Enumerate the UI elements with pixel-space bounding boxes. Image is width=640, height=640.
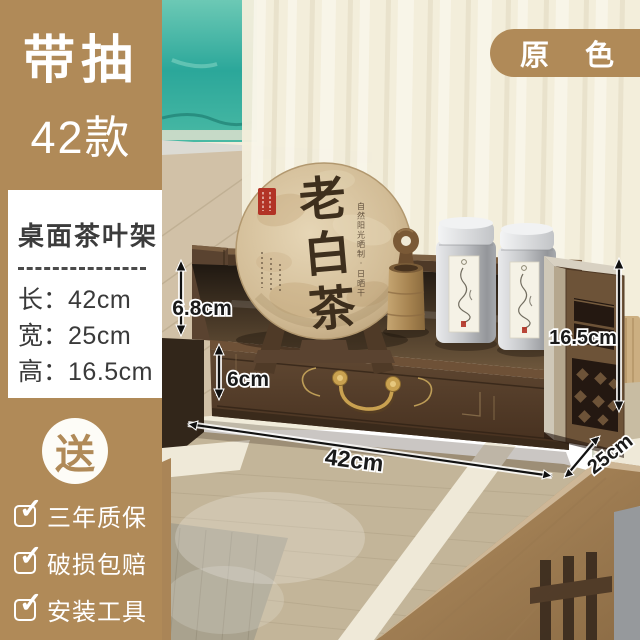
- dim-value: 16.5cm: [68, 358, 153, 386]
- feature-label: 安装工具: [47, 592, 147, 627]
- dimension-width: 宽：25cm: [18, 318, 162, 354]
- gift-panel: 送 ✓ 三年质保 ✓ 破损包赔 ✓ 安装工具: [0, 398, 162, 640]
- dimension-height: 高：16.5cm: [18, 354, 162, 390]
- gift-badge-text: 送: [55, 422, 95, 480]
- drawer-style-badge: 带抽 42款: [0, 0, 162, 190]
- annotation-total-height: 16.5cm: [549, 327, 617, 349]
- feature-warranty: ✓ 三年质保: [14, 498, 162, 533]
- product-title: 桌面茶叶架: [18, 216, 162, 253]
- seal-stamp-icon: [258, 188, 276, 215]
- dim-label: 长：: [18, 286, 68, 314]
- dim-value: 25cm: [68, 322, 131, 350]
- tea-cake-side-note: 自然阳光晒制·日晒干: [357, 201, 366, 298]
- dim-label: 高：: [18, 358, 68, 386]
- product-info: 桌面茶叶架 长：42cm 宽：25cm 高：16.5cm: [0, 190, 162, 390]
- tea-canister-left: [435, 217, 497, 351]
- product-photo: 老白茶 自然阳光晒制·日晒干: [162, 0, 640, 640]
- sidebar: 带抽 42款 桌面茶叶架 长：42cm 宽：25cm 高：16.5cm 送 ✓ …: [0, 0, 162, 640]
- feature-damage: ✓ 破损包赔: [14, 545, 162, 580]
- annotation-drawer-height: 6cm: [227, 368, 269, 391]
- canister-label: [510, 262, 539, 338]
- rack-side-panel: [544, 256, 624, 458]
- dim-value: 42cm: [68, 286, 131, 314]
- annotation-rail-height: 6.8cm: [172, 297, 232, 320]
- dim-label: 宽：: [18, 322, 68, 350]
- table-left-edge: [162, 458, 171, 640]
- product-card: 带抽 42款 桌面茶叶架 长：42cm 宽：25cm 高：16.5cm 送 ✓ …: [0, 0, 640, 640]
- dashed-divider: [18, 267, 146, 270]
- gift-badge: 送: [42, 418, 108, 484]
- canister-label: [449, 256, 479, 332]
- bamboo-tube: [387, 268, 425, 330]
- feature-label: 三年质保: [47, 498, 147, 533]
- gray-floor-corner: [614, 506, 640, 640]
- badge-line2: 42款: [0, 101, 162, 166]
- feature-label: 破损包赔: [47, 545, 147, 580]
- scene-illustration: 老白茶 自然阳光晒制·日晒干: [162, 0, 640, 640]
- tea-cake-group: 老白茶 自然阳光晒制·日晒干: [236, 163, 412, 374]
- checkbox-icon: ✓: [14, 552, 36, 574]
- checkbox-icon: ✓: [14, 599, 36, 621]
- badge-line1: 带抽: [0, 0, 162, 93]
- feature-tools: ✓ 安装工具: [14, 592, 162, 627]
- dimension-length: 长：42cm: [18, 282, 162, 318]
- checkmark-icon: ✓: [19, 539, 42, 572]
- checkmark-icon: ✓: [19, 586, 42, 619]
- checkbox-icon: ✓: [14, 505, 36, 527]
- variant-badge: 原 色: [490, 29, 640, 77]
- checkmark-icon: ✓: [19, 492, 42, 525]
